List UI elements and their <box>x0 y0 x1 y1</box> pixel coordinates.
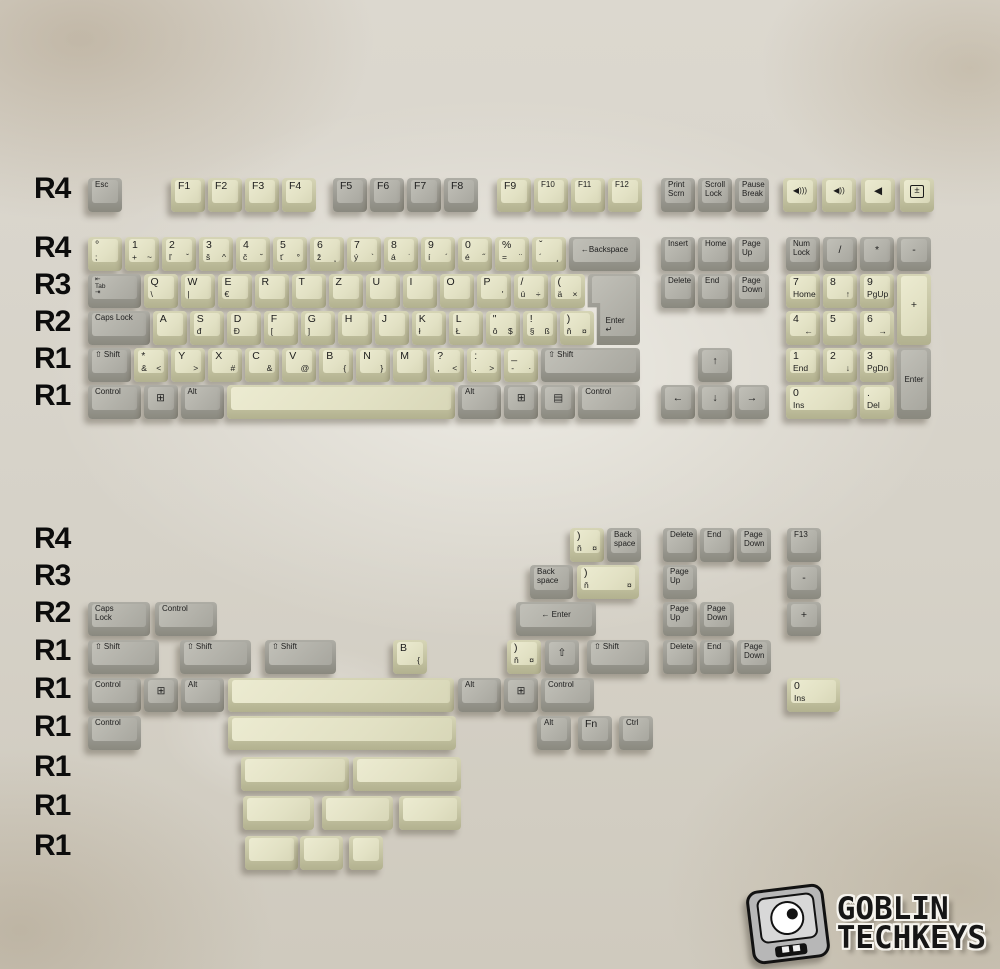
key-legend: & <box>141 363 147 373</box>
key-iso-enter: Enter ↵ <box>588 274 641 345</box>
key-o-circumflex: "ô$ <box>486 311 520 345</box>
keycap-top-face: * <box>864 239 890 262</box>
key-legend: 4 <box>243 240 249 252</box>
key-legend: Page Down <box>742 277 762 295</box>
keycap-top-face: X# <box>212 350 238 373</box>
mascot-mouth-icon <box>774 943 807 958</box>
key-legend: é <box>465 252 470 262</box>
keycap-top-face: T <box>296 276 322 299</box>
key-n-caron-r4: )ň¤ <box>570 528 604 562</box>
key-legend: Ins <box>794 693 805 703</box>
key-legend: | <box>188 289 190 299</box>
key-legend: Page Up <box>670 605 689 623</box>
key-legend: Caps Lock <box>95 605 114 623</box>
key-o: O <box>440 274 474 308</box>
key-volume-mute: ◀ <box>861 178 895 212</box>
key-legend: ⊞ <box>157 686 166 698</box>
key-legend: § <box>530 326 535 336</box>
key-legend: Print Scrn <box>668 181 684 199</box>
keycap-top-face: ◀))) <box>787 180 813 203</box>
key-delete: Delete <box>661 274 695 308</box>
key-arrow-right: → <box>735 385 769 419</box>
key-legend: ⇧ Shift <box>272 643 297 652</box>
keycap-top-face: Q\ <box>148 276 174 299</box>
key-right-alt: Alt <box>458 385 501 419</box>
keycap-top-face: A <box>157 313 183 336</box>
key-i: I <box>403 274 437 308</box>
keycap-top-face: F11 <box>575 180 601 203</box>
keycap-top-face: Alt <box>185 387 220 410</box>
key-j: J <box>375 311 409 345</box>
key-legend: ) <box>584 568 588 580</box>
keycap-top-face: C& <box>249 350 275 373</box>
keycap-top-face: ?,< <box>434 350 460 373</box>
key-legend: - <box>802 573 806 585</box>
key-win-b1: ⊞ <box>144 678 178 712</box>
keycap-top-face: Caps Lock <box>92 313 146 336</box>
key-e: E€ <box>218 274 252 308</box>
key-legend: Caps Lock <box>95 314 133 323</box>
key-blank-1u <box>349 836 383 870</box>
key-legend: ↓ <box>846 363 850 373</box>
keycap-top-face: Alt <box>541 718 567 741</box>
key-legend: Alt <box>465 388 474 397</box>
key-legend: [ <box>271 326 273 336</box>
key-legend: > <box>193 363 198 373</box>
key-legend: F9 <box>504 181 516 193</box>
keycap-top-face: 8á˙ <box>388 239 414 262</box>
key-legend: P <box>484 277 491 289</box>
key-numpad-9: 9PgUp <box>860 274 894 308</box>
key-legend: E <box>225 277 232 289</box>
key-legend: Del <box>867 400 880 410</box>
keycap-top-face: F8 <box>448 180 474 203</box>
keycap-top-face: I <box>407 276 433 299</box>
key-legend: U <box>373 277 381 289</box>
key-f2: F2 <box>208 178 242 212</box>
key-x: X# <box>208 348 242 382</box>
row-label: R1 <box>34 789 90 823</box>
keycap-top-face: Pause Break <box>739 180 765 203</box>
key-comma: ?,< <box>430 348 464 382</box>
key-s: Sđ <box>190 311 224 345</box>
key-win-b2: ⊞ <box>504 678 538 712</box>
key-5: 5ť° <box>273 237 307 271</box>
key-legend: Delete <box>670 531 693 540</box>
mascot-eye-icon <box>768 899 806 937</box>
key-end: End <box>700 528 734 562</box>
key-legend: š <box>206 252 210 262</box>
key-legend: · <box>528 363 531 373</box>
keycap-top-face: Control <box>92 718 137 741</box>
key-page-down: Page Down <box>735 274 769 308</box>
key-legend: ˘ <box>260 252 263 262</box>
key-numpad-divide: / <box>823 237 857 271</box>
key-legend: ⇧ Shift <box>594 643 619 652</box>
key-legend: Q <box>151 277 159 289</box>
key-legend: ? <box>437 351 443 363</box>
key-legend: 5 <box>280 240 286 252</box>
key-legend: ľ <box>169 252 171 262</box>
keycap: Page Up <box>663 602 697 636</box>
key-8: 8á˙ <box>384 237 418 271</box>
key-f5: F5 <box>333 178 367 212</box>
keycap-top-face: Control <box>582 387 636 410</box>
key-legend: # <box>231 363 236 373</box>
key-legend: S <box>197 314 204 326</box>
key-legend: Control <box>162 605 188 614</box>
key-legend: ←Backspace <box>581 246 628 255</box>
key-legend: Alt <box>188 388 197 397</box>
logo-text: GOBLIN TECHKEYS <box>837 895 986 954</box>
key-legend: Control <box>95 681 121 690</box>
keycap-top-face: 0é˝ <box>462 239 488 262</box>
key-legend: 8 <box>830 277 836 289</box>
keycap-top-face: 3PgDn <box>864 350 890 373</box>
key-legend: B <box>326 351 333 363</box>
key-legend: ä <box>558 289 563 299</box>
keycap-mascot-icon <box>744 883 830 966</box>
mascot-tooth-icon <box>792 945 800 952</box>
key-numpad-6: 6→ <box>860 311 894 345</box>
keycap-top-face: R <box>259 276 285 299</box>
key-legend: F3 <box>252 181 264 193</box>
key-legend: < <box>452 363 457 373</box>
key-legend: Insert <box>668 240 688 249</box>
keycap-top-face: 5ť° <box>277 239 303 262</box>
key-legend: Alt <box>544 719 553 728</box>
key-legend: ] <box>308 326 310 336</box>
keycap-top-face: ← <box>665 387 691 410</box>
keycap-top-face: → <box>739 387 765 410</box>
key-2: 2ľˇ <box>162 237 196 271</box>
key-left-alt: Alt <box>181 385 224 419</box>
keycap-top-face: )ň¤ <box>564 313 590 336</box>
key-legend: ~ <box>147 252 152 262</box>
key-3: 3š^ <box>199 237 233 271</box>
keycap-top-face: E€ <box>222 276 248 299</box>
key-left-win: ⊞ <box>144 385 178 419</box>
keycap-top-face: ◀ <box>865 180 891 203</box>
row-label: R1 <box>34 379 90 413</box>
logo-text-line2: TECHKEYS <box>837 924 986 953</box>
keycap-top-face: Page Down <box>739 276 765 299</box>
key-numpad-5: 5 <box>823 311 857 345</box>
key-section: !§ß <box>523 311 557 345</box>
keycap-top-face: End <box>704 530 730 553</box>
key-blank-2u-b <box>322 796 393 830</box>
key-legend: ▤ <box>553 393 563 405</box>
keycap-top-face: G] <box>305 313 331 336</box>
keycap-top-face: Control <box>545 680 590 703</box>
keycap-top-face: 7Home <box>790 276 816 299</box>
key-legend: ž <box>317 252 321 262</box>
key-legend: + <box>801 610 807 622</box>
key-legend: ↑ <box>712 356 717 368</box>
keycap: %=¨ <box>495 237 529 271</box>
keycap-top-face: Control <box>159 604 213 627</box>
keycap-top-face: ⇧ <box>549 642 575 665</box>
keycap-top-face: 0Ins <box>791 680 836 703</box>
keycap-top-face: 6→ <box>864 313 890 336</box>
key-legend: End <box>707 643 721 652</box>
key-legend: ÷ <box>536 289 541 299</box>
keycap: Control <box>88 716 141 750</box>
key-legend: € <box>225 289 230 299</box>
key-legend: ↑ <box>846 289 850 299</box>
key-legend: ° <box>95 240 99 252</box>
key-4: 4č˘ <box>236 237 270 271</box>
row-label: R4 <box>34 522 90 556</box>
key-c: C& <box>245 348 279 382</box>
keycap-top-face <box>232 680 450 703</box>
key-legend: 1 <box>132 240 138 252</box>
keycap-top-face: Page Down <box>741 642 767 665</box>
keycap-top-face: Page Down <box>704 604 730 627</box>
keycap-top-face: F2 <box>212 180 238 203</box>
keycap: Page Down <box>737 528 771 562</box>
keycap-top-face: ⊞ <box>148 387 174 410</box>
keycap-top-face: Control <box>92 387 137 410</box>
key-numpad-0: 0Ins <box>786 385 857 419</box>
keycap-top-face: °; <box>92 239 118 262</box>
keycap-top-face: B{ <box>323 350 349 373</box>
key-legend: ´ <box>539 252 542 262</box>
key-legend: . <box>867 388 870 400</box>
key-legend: Home <box>793 289 816 299</box>
keycap-top-face: ⊞ <box>508 680 534 703</box>
keycap-top-face: _-· <box>508 350 534 373</box>
keycap-top-face: ←Backspace <box>573 239 636 262</box>
key-h: H <box>338 311 372 345</box>
keycap-top-face: ⇧ Shift <box>92 350 127 373</box>
keycap-top-face: F1 <box>175 180 201 203</box>
keycap: Delete <box>663 528 697 562</box>
key-legend: ` <box>371 252 374 262</box>
key-alt: Alt <box>181 678 224 712</box>
key-legend: PgDn <box>867 363 888 373</box>
key-legend: End <box>793 363 808 373</box>
key-legend: F2 <box>215 181 227 193</box>
keycap-top-face: - <box>901 239 927 262</box>
key-legend: ← <box>805 326 814 336</box>
key-numpad-1: 1End <box>786 348 820 382</box>
key-0: 0é˝ <box>458 237 492 271</box>
key-legend: Back space <box>614 531 635 549</box>
key-legend: ň <box>514 655 519 665</box>
keycap-top-face: Caps Lock <box>92 604 146 627</box>
keycap-top-face: Back space <box>611 530 637 553</box>
row-label: R1 <box>34 342 90 376</box>
keycap-top-face: "ô$ <box>490 313 516 336</box>
key-legend: Scroll Lock <box>705 181 725 199</box>
key-legend: 9 <box>867 277 873 289</box>
key-legend: L <box>456 314 462 326</box>
keycap-top-face: V@ <box>286 350 312 373</box>
key-legend: - <box>511 363 514 373</box>
key-blank-15u <box>245 836 298 870</box>
key-spacebar-b1 <box>228 678 454 712</box>
key-legend: 2 <box>830 351 836 363</box>
key-legend: ¤ <box>627 580 632 590</box>
key-legend: ⇧ Shift <box>95 351 120 360</box>
key-legend: ¤ <box>592 543 597 553</box>
key-legend: ◀ <box>874 186 882 198</box>
key-legend: 1 <box>793 351 799 363</box>
key-f: F[ <box>264 311 298 345</box>
keycap-top-face: Page Up <box>667 604 693 627</box>
key-legend: ˛ <box>334 252 337 262</box>
keycap-top-face: ⇧ Shift <box>545 350 636 373</box>
key-legend: F13 <box>794 531 808 540</box>
key-f3: F3 <box>245 178 279 212</box>
keycap: Page Down <box>700 602 734 636</box>
keycap-top-face <box>326 798 389 821</box>
key-legend: 4 <box>793 314 799 326</box>
key-tab: ⇤ Tab ⇥ <box>88 274 141 308</box>
key-enter-r2: ← Enter <box>516 602 596 636</box>
keycap-top-face: 1+~ <box>129 239 155 262</box>
keycap-top-face: Alt <box>462 680 497 703</box>
key-menu: ▤ <box>541 385 575 419</box>
key-right-shift: ⇧ Shift <box>541 348 640 382</box>
key-legend: T <box>299 277 305 289</box>
keycap-top-face: /ú÷ <box>518 276 544 299</box>
key-volume-up: ◀))) <box>783 178 817 212</box>
key-legend: , <box>437 363 439 373</box>
keycap-top-face: Kł <box>416 313 442 336</box>
key-legend: Đ <box>234 326 240 336</box>
keycap-top-face: F3 <box>249 180 275 203</box>
keycap-top-face <box>245 759 345 782</box>
key-legend: & <box>267 363 273 373</box>
key-legend: D <box>234 314 242 326</box>
key-legend: Alt <box>188 681 197 690</box>
key-numpad-3: 3PgDn <box>860 348 894 382</box>
key-7: 7ý` <box>347 237 381 271</box>
key-plus-r2: + <box>787 602 821 636</box>
keycap-top-face <box>353 838 379 861</box>
keycap-top-face: 4← <box>790 313 816 336</box>
key-legend: O <box>447 277 455 289</box>
row-label: R4 <box>34 172 90 206</box>
key-legend: @ <box>301 363 310 373</box>
keycap-top-face: Delete <box>667 530 693 553</box>
key-legend: K <box>419 314 426 326</box>
key-fn: Fn <box>578 716 612 750</box>
key-iso-extra: *&< <box>134 348 168 382</box>
key-legend: 7 <box>793 277 799 289</box>
key-blank-3u-a <box>241 757 349 791</box>
row-label: R1 <box>34 672 90 706</box>
key-legend: 3 <box>867 351 873 363</box>
key-numpad-minus: - <box>897 237 931 271</box>
key-p: P' <box>477 274 511 308</box>
key-legend: * <box>141 351 145 363</box>
key-backspace-r4: Back space <box>607 528 641 562</box>
keycap-top-face: ⇧ Shift <box>269 642 332 665</box>
keycap-top-face <box>304 838 339 861</box>
keycap-top-face: ± <box>904 180 930 203</box>
key-esc: Esc <box>88 178 122 212</box>
key-legend: Z <box>336 277 342 289</box>
keycap-top-face: Control <box>92 680 137 703</box>
keycap-top-face: ⇤ Tab ⇥ <box>92 276 137 299</box>
row-label: R1 <box>34 750 90 784</box>
key-legend: % <box>502 240 511 252</box>
keycap-top-face: Z <box>333 276 359 299</box>
key-legend: Ł <box>456 326 461 336</box>
key-legend: 0 <box>465 240 471 252</box>
key-legend: Control <box>95 388 121 397</box>
key-legend: F7 <box>414 181 426 193</box>
keycap-top-face <box>231 387 451 410</box>
key-legend: 9 <box>428 240 434 252</box>
keycap-top-face: (ä× <box>555 276 581 299</box>
key-legend: Y <box>178 351 185 363</box>
key-legend: M <box>400 351 409 363</box>
key-legend: ť <box>280 252 283 262</box>
key-legend: PgUp <box>867 289 888 299</box>
key-legend: 2 <box>169 240 175 252</box>
key-legend: Num Lock <box>793 240 810 258</box>
keycap-top-face: B{ <box>397 642 423 665</box>
key-backspace: ←Backspace <box>569 237 640 271</box>
key-semicolon: °; <box>88 237 122 271</box>
keycap-top-face: W| <box>185 276 211 299</box>
key-legend: ) <box>577 531 581 543</box>
key-legend: ◀)) <box>833 187 844 196</box>
keycap-top-face: F10 <box>538 180 564 203</box>
key-n-caron-r3: )ň¤ <box>577 565 639 599</box>
key-z: Z <box>329 274 363 308</box>
key-legend: ⊞ <box>517 686 526 698</box>
key-f12: F12 <box>608 178 642 212</box>
key-legend: ◀))) <box>793 187 807 196</box>
key-legend: ¤ <box>582 326 587 336</box>
keycap-top-face: ⊞ <box>148 680 174 703</box>
key-blank-3u-b <box>353 757 461 791</box>
key-legend: ň <box>584 580 589 590</box>
keycap-top-face: )ň¤ <box>511 642 537 665</box>
key-shift-2u-c: ⇧ Shift <box>265 640 336 674</box>
key-a-umlaut: (ä× <box>551 274 585 308</box>
key-f1: F1 <box>171 178 205 212</box>
key-legend: Back space <box>537 568 558 586</box>
key-r: R <box>255 274 289 308</box>
key-legend: č <box>243 252 247 262</box>
key-a: A <box>153 311 187 345</box>
key-legend: Ins <box>793 400 804 410</box>
keycap-top-face: Alt <box>185 680 220 703</box>
key-page-up: Page Up <box>735 237 769 271</box>
key-k: Kł <box>412 311 446 345</box>
key-legend: ^ <box>222 252 226 262</box>
key-legend: " <box>493 314 497 326</box>
key-legend: Home <box>705 240 726 249</box>
key-spacebar-b2 <box>228 716 456 750</box>
key-legend: V <box>289 351 296 363</box>
keycap-top-face: *&< <box>138 350 164 373</box>
keycap-top-face <box>403 798 457 821</box>
keycap-top-face: %=¨ <box>499 239 525 262</box>
key-legend: ← <box>673 393 684 405</box>
key-n: N} <box>356 348 390 382</box>
key-legend: . <box>474 363 476 373</box>
keycap-top-face: 7ý` <box>351 239 377 262</box>
key-legend: 6 <box>867 314 873 326</box>
keycap-top-face: End <box>702 276 728 299</box>
